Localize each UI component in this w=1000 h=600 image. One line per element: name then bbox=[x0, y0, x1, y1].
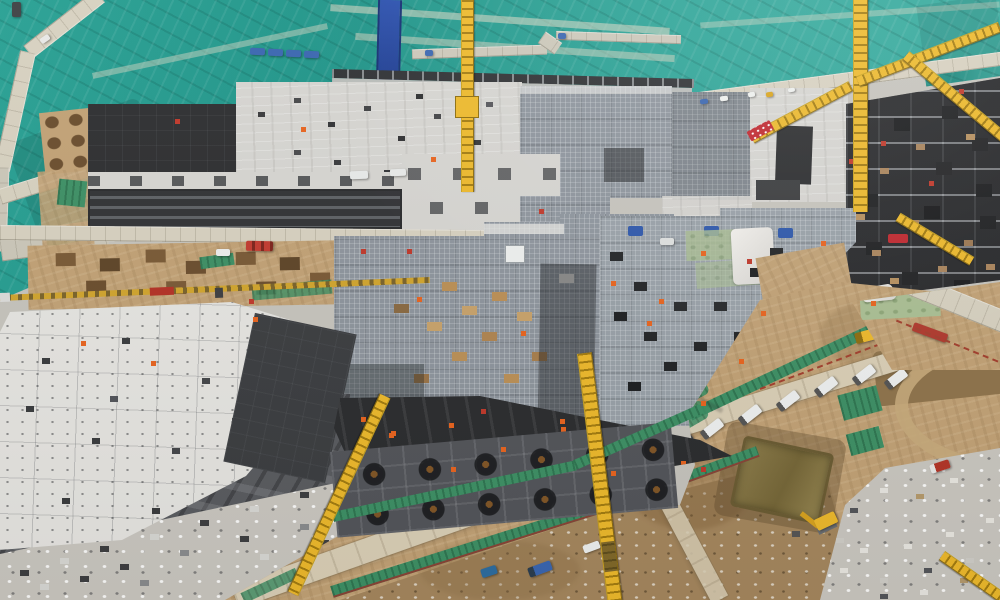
linear-foundation-trench bbox=[88, 189, 402, 229]
loader-red bbox=[246, 241, 273, 251]
crane-banner-red bbox=[150, 287, 174, 296]
blue-tarp bbox=[778, 228, 793, 238]
truck-white bbox=[390, 169, 406, 177]
tower-crane-mast-2 bbox=[853, 0, 868, 212]
crane-trolley bbox=[215, 288, 223, 298]
tower-crane-1-cab bbox=[455, 96, 479, 118]
crane-banner-red bbox=[888, 234, 908, 243]
poured-section-dark bbox=[756, 180, 800, 200]
concrete-deck-right bbox=[750, 88, 848, 202]
truck-white bbox=[660, 238, 674, 245]
netting-scrap bbox=[57, 179, 88, 208]
blue-site-truck bbox=[425, 50, 433, 56]
netting-slope-patch bbox=[846, 426, 885, 456]
excavation-pits-row bbox=[27, 240, 340, 309]
deck-debris bbox=[236, 82, 243, 87]
aerial-construction-photo: Aerial drone photograph of a large build… bbox=[0, 0, 1000, 600]
truck-dark-topleft bbox=[12, 2, 21, 17]
truck-white bbox=[350, 171, 368, 180]
rebar-mat-upper-right bbox=[672, 92, 750, 200]
deck-edge-strip bbox=[520, 86, 672, 94]
blue-site-truck bbox=[250, 48, 265, 56]
red-marker-dots bbox=[0, 0, 3, 3]
crane-mast-joint bbox=[601, 541, 618, 572]
netting-slope-patch bbox=[837, 385, 882, 420]
rebar-shade bbox=[672, 92, 750, 200]
waterproofed-slab-upper-left bbox=[88, 104, 238, 176]
blue-site-truck bbox=[286, 50, 301, 58]
poured-section-dark bbox=[775, 125, 813, 184]
rebar-dark-patch bbox=[604, 148, 644, 182]
blue-site-truck bbox=[558, 33, 566, 39]
site-office-box bbox=[506, 246, 524, 262]
blue-site-truck bbox=[304, 51, 319, 59]
barrier-line-red bbox=[896, 320, 1000, 367]
excavator-bucket bbox=[792, 531, 800, 537]
dirt-blotch bbox=[420, 540, 580, 600]
crane-jib-tip bbox=[0, 293, 10, 302]
blue-site-truck bbox=[268, 49, 283, 57]
van-white bbox=[216, 249, 230, 256]
excavation-pits bbox=[27, 245, 47, 258]
blue-tarp bbox=[628, 226, 643, 236]
